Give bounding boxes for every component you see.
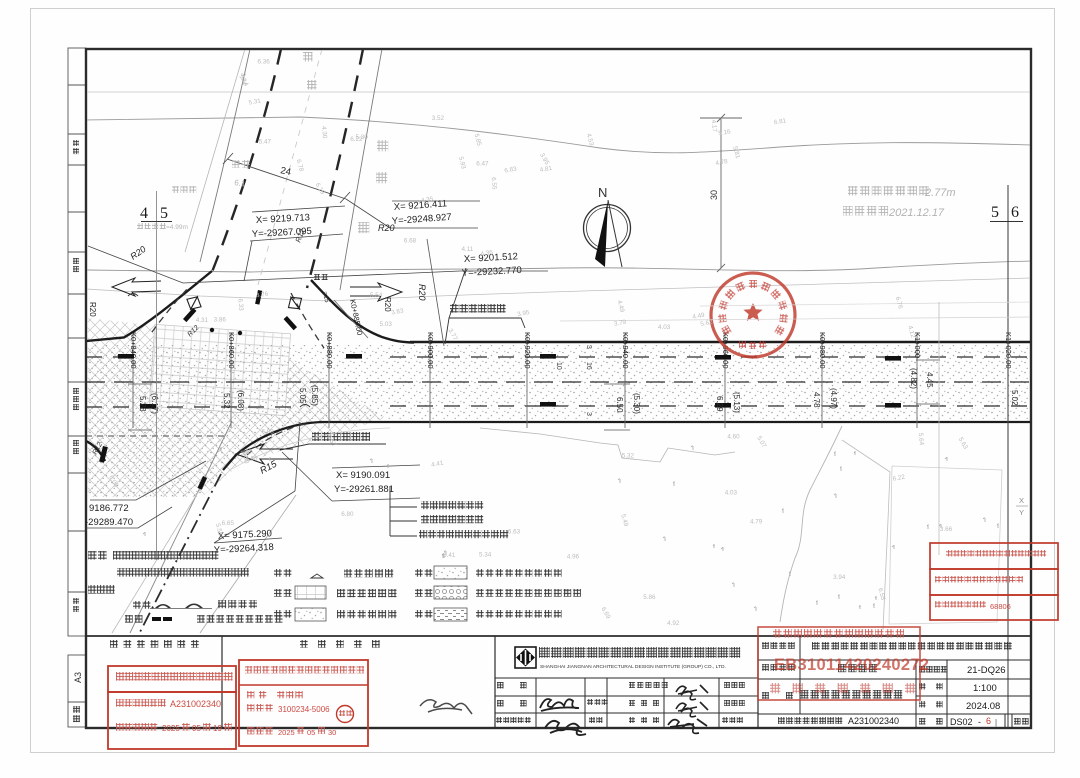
svg-text:6.1: 6.1 (234, 178, 247, 189)
svg-text:05: 05 (192, 724, 201, 733)
svg-text:A231002340: A231002340 (848, 716, 899, 726)
svg-text:5.03: 5.03 (380, 321, 393, 328)
svg-text:4.31: 4.31 (196, 317, 209, 324)
svg-text:-: - (978, 717, 981, 727)
svg-text:K0+980.00: K0+980.00 (818, 332, 827, 369)
svg-text:(6.08): (6.08) (236, 390, 245, 411)
svg-text:4: 4 (140, 205, 148, 222)
svg-text:16: 16 (585, 362, 592, 370)
svg-text:68806: 68806 (990, 602, 1011, 611)
svg-text:5.64: 5.64 (917, 433, 925, 446)
svg-text:5.02: 5.02 (1010, 390, 1019, 406)
svg-text:|: | (995, 718, 997, 727)
svg-text:3100234-5006: 3100234-5006 (278, 705, 330, 714)
svg-text:5: 5 (991, 204, 999, 221)
svg-text:5.54: 5.54 (370, 292, 383, 299)
svg-text:2.77m: 2.77m (924, 187, 956, 199)
svg-text:5.32: 5.32 (222, 393, 231, 409)
svg-text:6.80: 6.80 (341, 511, 354, 518)
svg-text:6.68: 6.68 (404, 237, 417, 244)
svg-text:6.65: 6.65 (222, 520, 235, 527)
svg-text:X= 9190.091: X= 9190.091 (336, 470, 390, 481)
svg-text:4.17: 4.17 (710, 119, 718, 132)
svg-text:R20: R20 (88, 302, 97, 317)
svg-text:4.60: 4.60 (727, 434, 740, 441)
svg-text:4.79: 4.79 (750, 519, 763, 526)
svg-text:3.66: 3.66 (940, 526, 953, 533)
svg-text:30: 30 (328, 728, 336, 737)
svg-text:5.32: 5.32 (622, 452, 635, 459)
svg-text:5.34: 5.34 (479, 551, 492, 558)
svg-text:K0+900.00: K0+900.00 (426, 332, 435, 369)
svg-text:K0+920.00: K0+920.00 (523, 332, 532, 369)
svg-text:4.30: 4.30 (320, 126, 328, 139)
svg-text:6.41: 6.41 (443, 552, 456, 559)
svg-text:6.33: 6.33 (236, 298, 244, 311)
svg-text:4.11: 4.11 (462, 246, 474, 253)
svg-text:Y: Y (1019, 508, 1024, 517)
svg-text:3.52: 3.52 (432, 115, 445, 122)
svg-text:5: 5 (160, 205, 168, 222)
svg-text:5.05: 5.05 (298, 388, 307, 404)
svg-text:4.96: 4.96 (567, 554, 580, 561)
svg-text:6.50: 6.50 (615, 397, 624, 413)
svg-text:10: 10 (555, 362, 562, 370)
svg-text:5.28: 5.28 (138, 396, 147, 412)
svg-text:5.86: 5.86 (643, 594, 656, 601)
svg-text:K0+860.00: K0+860.00 (227, 332, 236, 369)
svg-text:(5.30): (5.30) (632, 393, 641, 414)
svg-text:4.03: 4.03 (658, 324, 671, 331)
svg-text:=4.99m: =4.99m (166, 224, 188, 231)
svg-text:5.47: 5.47 (259, 139, 272, 146)
svg-text:(6.17): (6.17) (150, 393, 159, 414)
svg-text:21-DQ26: 21-DQ26 (967, 665, 1006, 676)
svg-text:R20: R20 (378, 223, 395, 233)
svg-text:1:100: 1:100 (973, 683, 997, 694)
svg-text:2021.12.17: 2021.12.17 (888, 207, 945, 219)
svg-text:3: 3 (585, 412, 592, 416)
svg-text:19: 19 (213, 724, 222, 733)
svg-text:3: 3 (585, 345, 592, 349)
svg-text:(5.13): (5.13) (732, 392, 741, 413)
svg-text:K0+940.00: K0+940.00 (621, 332, 630, 369)
svg-text:30: 30 (709, 190, 719, 200)
svg-text:X: X (1019, 496, 1024, 505)
svg-text:4.92: 4.92 (667, 620, 680, 627)
svg-text:9186.772: 9186.772 (89, 503, 129, 514)
svg-text:-29289.470: -29289.470 (85, 517, 133, 528)
svg-text:4.03: 4.03 (725, 490, 738, 497)
svg-text:4.78: 4.78 (812, 392, 821, 408)
svg-text:A231002340: A231002340 (170, 699, 221, 709)
svg-text:A3: A3 (73, 672, 83, 683)
svg-text:2025: 2025 (162, 724, 180, 733)
svg-text:24: 24 (279, 165, 292, 178)
svg-text:K0+840.00: K0+840.00 (129, 332, 138, 369)
svg-text:Y=-29261.881: Y=-29261.881 (334, 484, 394, 495)
svg-text:6.47: 6.47 (476, 161, 489, 168)
svg-text:SHANGHAI JIANGNAN ARCHITECTURA: SHANGHAI JIANGNAN ARCHITECTURAL DESIGN I… (540, 664, 726, 670)
svg-text:6.63: 6.63 (508, 528, 521, 535)
svg-text:DS02: DS02 (950, 717, 973, 727)
svg-text:2024.08: 2024.08 (966, 701, 1000, 712)
svg-text:6.03: 6.03 (262, 428, 275, 435)
svg-text:6.29: 6.29 (715, 396, 724, 412)
svg-text:(4.82): (4.82) (909, 368, 918, 389)
svg-text:6.55: 6.55 (490, 177, 498, 190)
svg-text:4.45: 4.45 (925, 372, 934, 388)
svg-text:K0+880.00: K0+880.00 (325, 332, 334, 369)
svg-text:(5.85): (5.85) (310, 385, 319, 406)
svg-text:(4.97): (4.97) (829, 388, 838, 409)
svg-text:6: 6 (986, 716, 991, 726)
svg-text:6: 6 (1011, 204, 1019, 221)
svg-text:5.30: 5.30 (356, 134, 369, 141)
svg-text:6.36: 6.36 (258, 58, 271, 65)
svg-text:05: 05 (307, 728, 315, 737)
svg-text:N: N (598, 185, 607, 200)
svg-text:2025: 2025 (278, 728, 295, 737)
svg-text:EB31011420240272: EB31011420240272 (774, 656, 929, 674)
svg-text:R20: R20 (417, 284, 427, 301)
svg-text:3.86: 3.86 (214, 316, 227, 323)
svg-text:3.94: 3.94 (833, 574, 846, 581)
